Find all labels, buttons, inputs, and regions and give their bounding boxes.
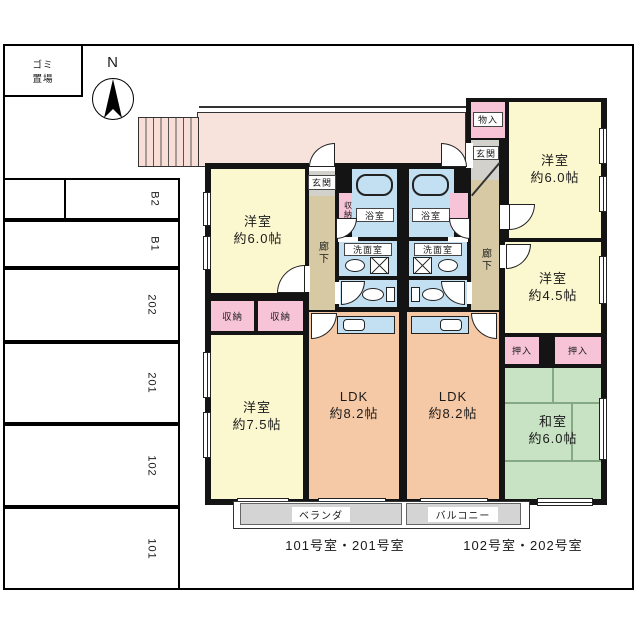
tatami-line <box>505 460 601 462</box>
room-size: 約6.0帖 <box>233 231 282 248</box>
parking-row-101: 101 <box>3 507 180 590</box>
room-size: 約4.5帖 <box>528 288 577 305</box>
room-name: LDK <box>439 389 467 406</box>
room-name: 洋室 <box>539 271 567 288</box>
tatami-line <box>552 368 554 402</box>
north-label: N <box>103 53 123 71</box>
left-bathtub-icon <box>356 174 393 196</box>
garbage-area: ゴミ 置場 <box>3 44 83 97</box>
left-washroom-label: 洗面室 <box>344 243 392 256</box>
left-bedroom-75: 洋室 約7.5帖 <box>211 335 303 499</box>
right-oshiire-1: 押入 <box>505 337 539 364</box>
parking-row-102: 102 <box>3 424 180 507</box>
door-opening <box>466 143 473 168</box>
left-ldk: LDK 約8.2帖 <box>309 312 399 499</box>
left-washer-icon <box>370 257 389 274</box>
garbage-label-line2: 置場 <box>32 71 53 85</box>
right-toilet-tank-icon <box>411 287 420 302</box>
stairs <box>138 117 199 167</box>
right-storage-label: 物入 <box>473 112 503 127</box>
parking-label: 102 <box>145 455 157 476</box>
parking-label: B2 <box>148 191 160 206</box>
parking-row-202: 202 <box>3 268 180 342</box>
parking-label: 101 <box>145 538 157 559</box>
left-bath-label: 浴室 <box>356 208 394 222</box>
right-entrance-label: 玄関 <box>473 146 499 160</box>
right-bath-label: 浴室 <box>412 208 450 222</box>
caption-unit-right: 102号室・202号室 <box>420 535 626 554</box>
parking-row-b1: B1 <box>3 220 180 268</box>
right-bathtub-icon <box>412 174 449 196</box>
right-ldk: LDK 約8.2帖 <box>407 312 499 499</box>
hallway-label: 廊下 <box>478 248 493 272</box>
balcony-label: バルコニー <box>428 507 498 522</box>
parking-sub-box <box>3 178 66 220</box>
door-opening <box>335 282 340 304</box>
north-arrow-icon <box>100 78 126 120</box>
veranda-label: ベランダ <box>292 507 350 522</box>
room-size: 約8.2帖 <box>428 406 477 423</box>
left-sink-icon <box>345 259 365 272</box>
door-opening <box>467 282 472 304</box>
window <box>599 176 607 212</box>
caption-unit-left: 101号室・201号室 <box>240 535 450 554</box>
floorplan-canvas: ゴミ 置場 N B2 B1 202 201 102 101 洋室 約6.0帖 玄… <box>0 0 640 640</box>
right-washer-icon <box>413 257 432 274</box>
right-oshiire-2: 押入 <box>555 337 601 364</box>
left-hallway: 廊下 <box>309 196 335 310</box>
oshiire-label: 押入 <box>512 344 532 357</box>
room-size: 約6.0帖 <box>530 170 579 187</box>
parking-label: B1 <box>148 236 160 251</box>
oshiire-label: 押入 <box>568 344 588 357</box>
room-name: 洋室 <box>244 214 272 231</box>
right-sink-icon <box>438 259 458 272</box>
closet-label: 収納 <box>270 309 291 323</box>
right-hallway: 廊下 <box>471 180 499 310</box>
right-toilet-bowl-icon <box>422 288 444 301</box>
closet-label: 収納 <box>222 309 243 323</box>
left-entrance-label: 玄関 <box>308 175 336 190</box>
window <box>203 352 211 398</box>
window <box>203 412 211 458</box>
room-name: LDK <box>340 389 368 406</box>
room-name: 洋室 <box>541 153 569 170</box>
window <box>537 498 593 506</box>
right-kitchen-sink-icon <box>440 319 462 331</box>
parking-row-201: 201 <box>3 342 180 424</box>
window <box>599 256 607 304</box>
left-kitchen-sink-icon <box>343 319 365 331</box>
left-toilet-tank-icon <box>386 287 395 302</box>
room-name: 和室 <box>539 414 567 431</box>
room-size: 約6.0帖 <box>528 431 577 448</box>
window <box>203 192 211 226</box>
corridor-outline <box>199 106 466 108</box>
garbage-label-line1: ゴミ <box>32 57 53 71</box>
room-size: 約7.5帖 <box>232 417 281 434</box>
room-size: 約8.2帖 <box>329 406 378 423</box>
right-washroom-label: 洗面室 <box>414 243 462 256</box>
window <box>599 128 607 164</box>
left-closet-1: 収納 <box>211 301 254 331</box>
parking-label: 202 <box>145 294 157 315</box>
parking-label: 201 <box>145 372 157 393</box>
window <box>599 398 607 460</box>
room-name: 洋室 <box>243 400 271 417</box>
left-closet-2: 収納 <box>258 301 303 331</box>
hallway-label: 廊下 <box>315 241 330 265</box>
window <box>203 236 211 270</box>
right-washitsu-label: 和室 約6.0帖 <box>505 404 601 458</box>
left-toilet-bowl-icon <box>362 288 384 301</box>
